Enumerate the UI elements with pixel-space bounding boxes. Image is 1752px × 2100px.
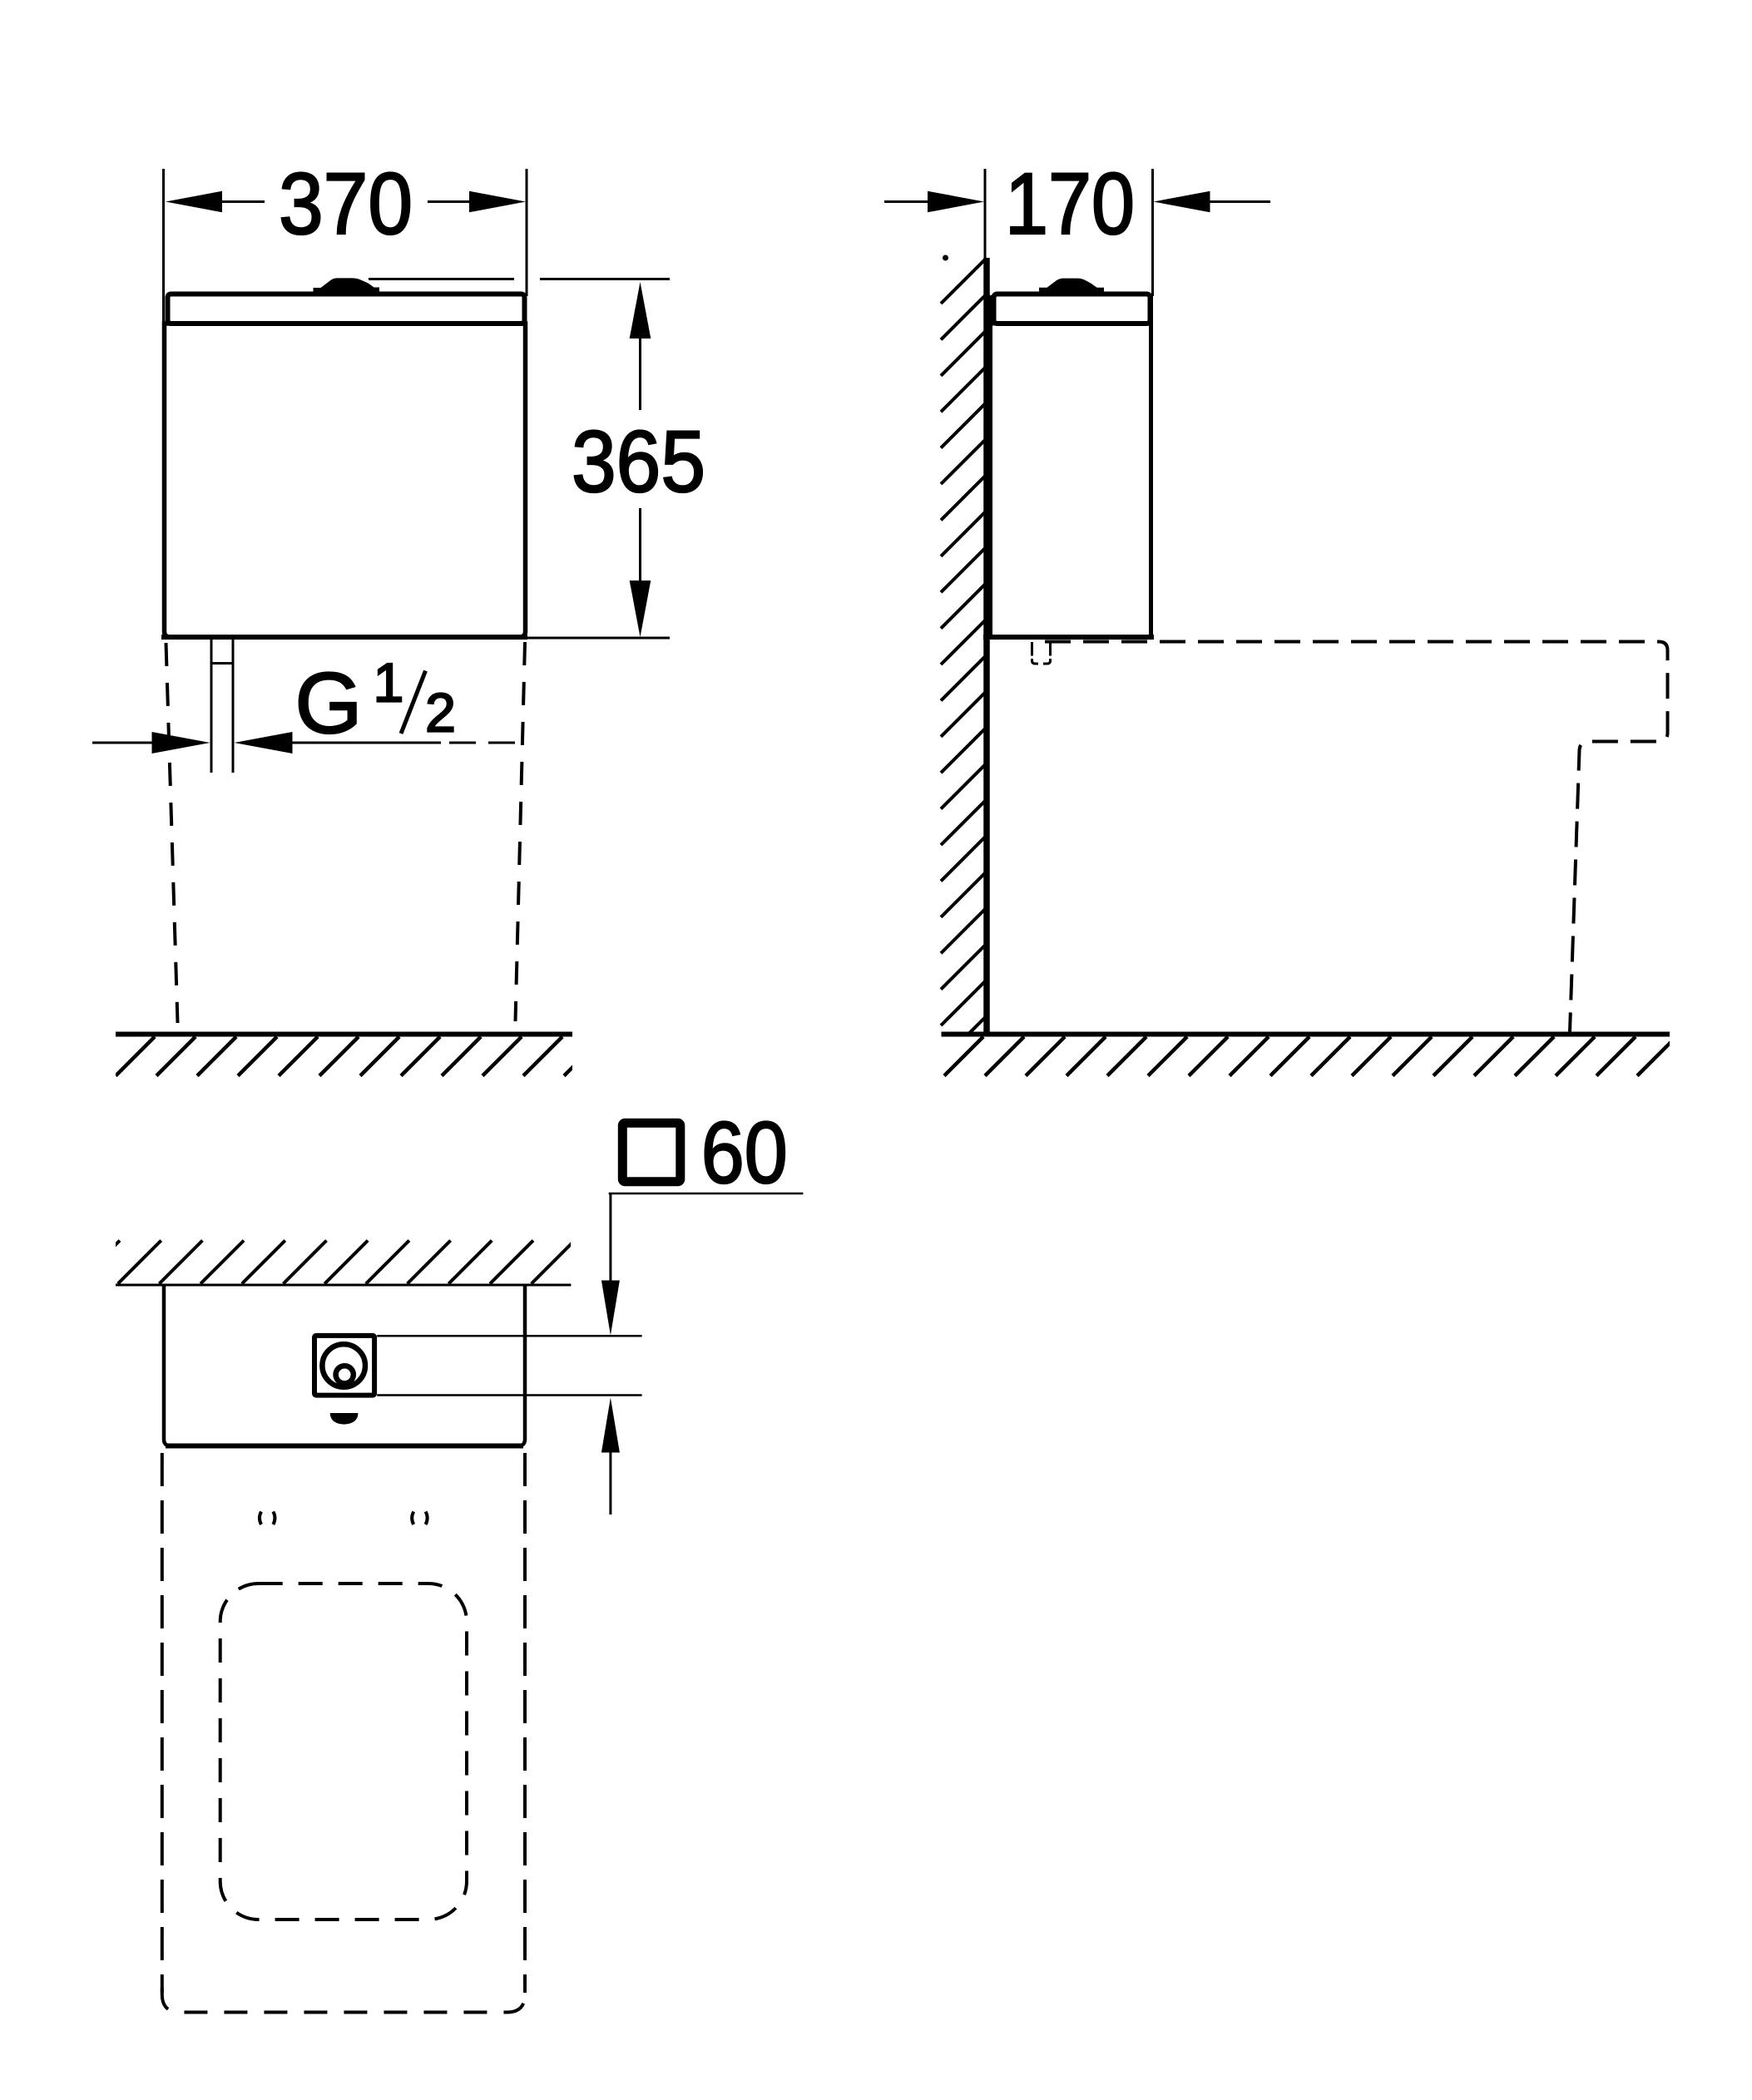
- svg-text:2: 2: [425, 682, 456, 744]
- svg-text:G: G: [295, 655, 363, 752]
- svg-text:60: 60: [701, 1104, 788, 1202]
- svg-text:365: 365: [572, 413, 705, 511]
- svg-text:1: 1: [374, 652, 404, 714]
- svg-text:370: 370: [279, 156, 413, 253]
- svg-text:170: 170: [1005, 156, 1135, 253]
